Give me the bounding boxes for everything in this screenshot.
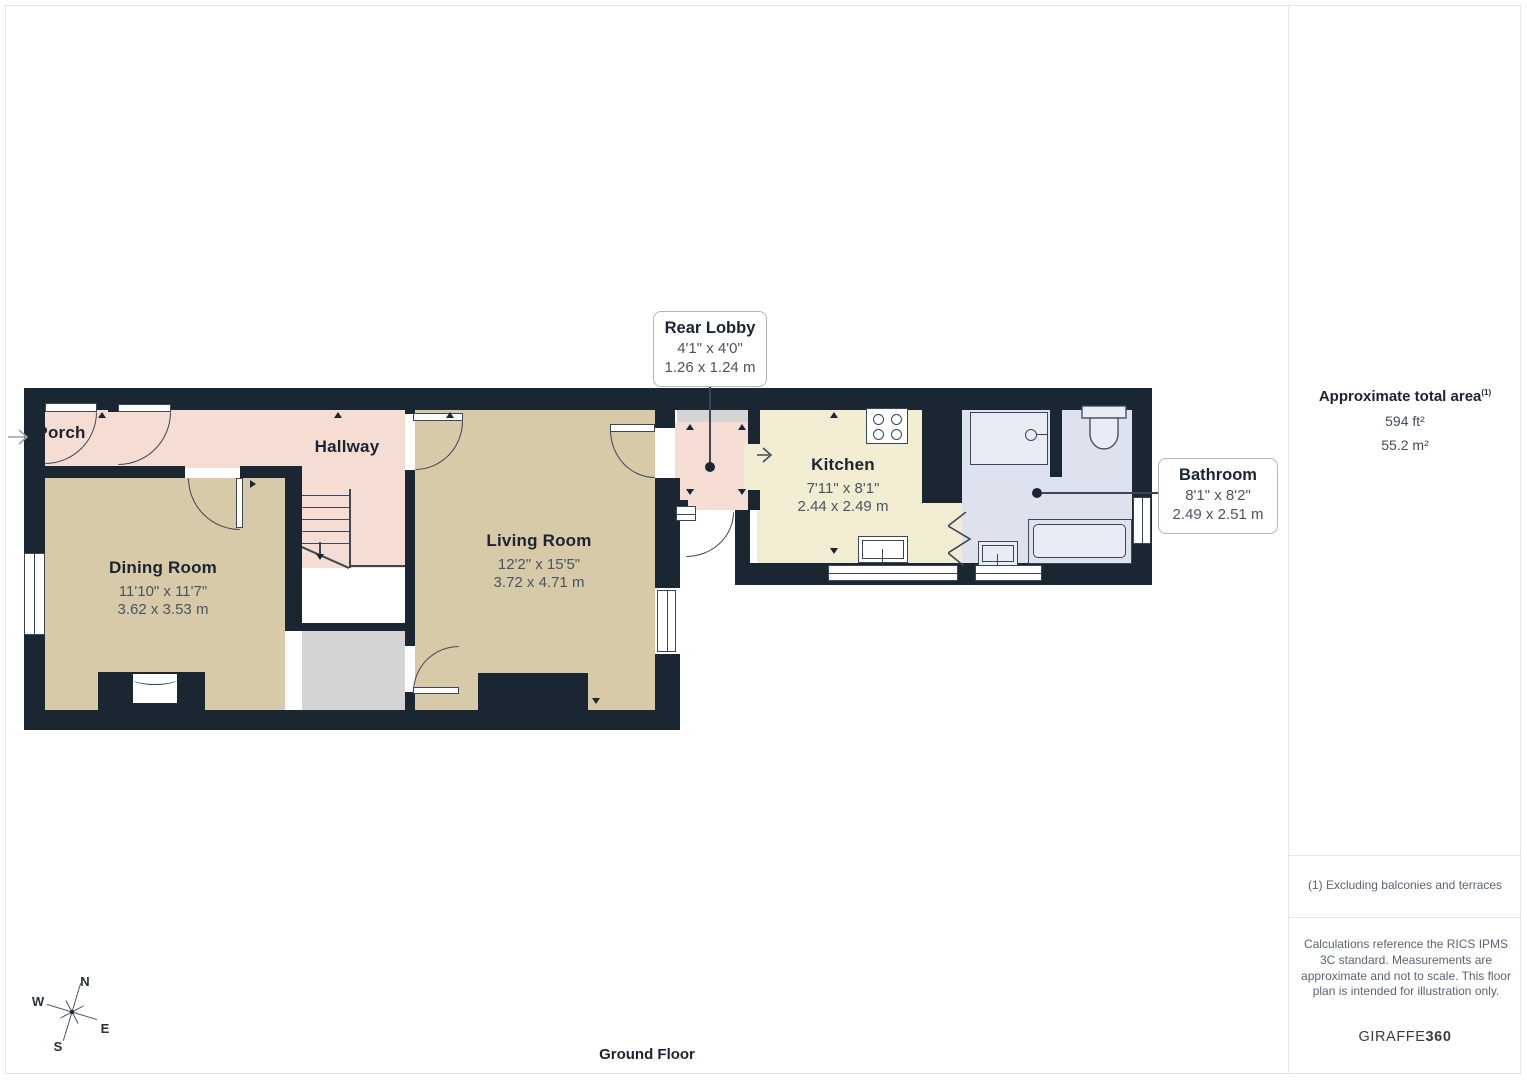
- stair-tread: [302, 531, 350, 532]
- door-leaf: [413, 413, 463, 421]
- kitchen-dims-metric: 2.44 x 2.49 m: [798, 499, 889, 517]
- door-tick-icon: [686, 424, 694, 430]
- stair-landing-line: [351, 565, 405, 567]
- storage-floor: [302, 631, 405, 710]
- room-label-dining: Dining Room 11'10" x 11'7" 3.62 x 3.53 m: [109, 558, 217, 620]
- footnote-text: (1) Excluding balconies and terraces: [1292, 878, 1518, 892]
- wall-segment: [748, 410, 760, 444]
- wall-segment: [1132, 388, 1152, 585]
- sidebar-divider: [1289, 855, 1521, 856]
- rear-lobby-label: Rear Lobby: [664, 319, 756, 338]
- room-label-kitchen: Kitchen 7'11" x 8'1" 2.44 x 2.49 m: [798, 455, 889, 517]
- room-label-living: Living Room 12'2" x 15'5" 3.72 x 4.71 m: [486, 531, 591, 593]
- door-tick-icon: [334, 412, 342, 418]
- stair-tread: [302, 495, 350, 496]
- total-area-ft: 594 ft²: [1290, 413, 1520, 429]
- stair-tread: [302, 543, 350, 544]
- dining-dims-imperial: 11'10" x 11'7": [109, 583, 217, 601]
- compass-south-label: S: [54, 1039, 63, 1054]
- callout-anchor-dot: [1032, 488, 1042, 498]
- window: [975, 565, 1042, 581]
- sidebar-divider: [1288, 6, 1289, 1074]
- window: [1133, 497, 1151, 544]
- bathroom-label: Bathroom: [1169, 466, 1267, 485]
- sink-tap-line: [997, 554, 998, 566]
- wall-segment: [1050, 410, 1062, 477]
- floor-break-zigzag-icon: [948, 512, 976, 568]
- door-tick-icon: [446, 412, 454, 418]
- brand-suffix: 360: [1426, 1029, 1452, 1045]
- stair-void: [302, 568, 405, 623]
- disclaimer-text: Calculations reference the RICS IPMS 3C …: [1300, 937, 1512, 1000]
- compass-north-label: N: [80, 974, 89, 989]
- hob-burner-icon: [873, 429, 884, 440]
- stair-rail: [349, 489, 351, 568]
- callout-rear-lobby: Rear Lobby 4'1" x 4'0" 1.26 x 1.24 m: [653, 311, 767, 387]
- chimney-breast: [478, 673, 588, 710]
- total-area-block: Approximate total area(1) 594 ft² 55.2 m…: [1290, 388, 1520, 453]
- wall-segment: [24, 388, 45, 553]
- hob-burner-icon: [891, 414, 902, 425]
- room-label-porch: Porch: [36, 423, 85, 443]
- shower-drain-line: [1037, 434, 1047, 435]
- door-tick-icon: [738, 489, 746, 495]
- wall-segment: [405, 692, 415, 710]
- stair-direction-arrow: [319, 542, 321, 554]
- door-leaf: [118, 404, 171, 412]
- toilet-icon: [1078, 404, 1132, 456]
- wall-segment: [405, 470, 415, 646]
- sidebar-divider: [1289, 917, 1521, 918]
- wall-segment: [24, 388, 1152, 410]
- wall-segment: [748, 490, 760, 510]
- rear-lobby-dims-metric: 1.26 x 1.24 m: [664, 359, 756, 378]
- porch-label: Porch: [36, 423, 85, 443]
- living-label: Living Room: [486, 531, 591, 551]
- living-dims-metric: 3.72 x 4.71 m: [486, 575, 591, 593]
- stair-tread: [302, 519, 350, 520]
- wall-segment: [24, 710, 680, 730]
- total-area-footnote-marker: (1): [1481, 388, 1491, 397]
- bathtub-basin: [1033, 524, 1126, 558]
- compass-icon: N W E S: [22, 972, 122, 1054]
- brand-logo: GIRAFFE360: [1290, 1029, 1520, 1045]
- bathroom-sink: [978, 541, 1018, 566]
- rear-door-threshold: [677, 408, 749, 422]
- total-area-m: 55.2 m²: [1290, 437, 1520, 453]
- brand-name: GIRAFFE: [1358, 1029, 1425, 1045]
- door-tick-icon: [830, 548, 838, 554]
- window: [24, 553, 45, 635]
- shower-tray: [970, 412, 1048, 465]
- wall-segment: [922, 408, 962, 503]
- hob-burner-icon: [891, 429, 902, 440]
- stair-arrow-head-icon: [316, 554, 324, 560]
- wall-segment: [655, 478, 680, 588]
- kitchen-label: Kitchen: [798, 455, 889, 475]
- rear-lobby-dims-imperial: 4'1" x 4'0": [664, 340, 756, 359]
- fireplace-arch-line: [133, 674, 177, 685]
- kitchen-sink: [858, 536, 908, 563]
- stair-tread: [302, 507, 350, 508]
- wall-segment: [285, 623, 415, 631]
- wall-segment: [655, 410, 675, 428]
- total-area-title-text: Approximate total area: [1319, 388, 1482, 405]
- floor-name-label: Ground Floor: [547, 1046, 747, 1063]
- room-label-hallway: Hallway: [315, 437, 380, 457]
- compass-west-label: W: [32, 994, 45, 1009]
- window: [657, 590, 676, 652]
- door-tick-icon: [738, 424, 746, 430]
- shower-drain-icon: [1025, 429, 1037, 441]
- bathroom-dims-imperial: 8'1" x 8'2": [1169, 487, 1267, 506]
- dining-dims-metric: 3.62 x 3.53 m: [109, 602, 217, 620]
- door-tick-icon: [686, 489, 694, 495]
- wall-segment: [655, 654, 680, 710]
- dining-label: Dining Room: [109, 558, 217, 578]
- kitchen-dims-imperial: 7'11" x 8'1": [798, 480, 889, 498]
- callout-bathroom: Bathroom 8'1" x 8'2" 2.49 x 2.51 m: [1158, 458, 1278, 534]
- sink-tap-line: [882, 549, 883, 562]
- callout-leader-line: [709, 378, 711, 464]
- door-tick-icon: [98, 412, 106, 418]
- wall-segment: [285, 477, 302, 631]
- door-leaf: [45, 403, 97, 412]
- door-tick-icon: [592, 698, 600, 704]
- living-dims-imperial: 12'2" x 15'5": [486, 556, 591, 574]
- floorplan-page: Porch Hallway Dining Room 11'10" x 11'7"…: [0, 0, 1527, 1080]
- door-tick-icon: [250, 480, 256, 488]
- callout-leader-line: [1042, 492, 1160, 494]
- wall-segment: [45, 466, 185, 478]
- entry-arrow-icon: [8, 429, 34, 445]
- hallway-label: Hallway: [315, 437, 380, 457]
- hob-burner-icon: [873, 414, 884, 425]
- door-tick-icon: [830, 412, 838, 418]
- bathtub: [1028, 519, 1132, 564]
- hob: [866, 408, 908, 444]
- total-area-title: Approximate total area(1): [1290, 388, 1520, 405]
- bathroom-dims-metric: 2.49 x 2.51 m: [1169, 506, 1267, 525]
- compass-east-label: E: [101, 1021, 110, 1036]
- window: [828, 565, 958, 581]
- kitchen-entry-arrow-icon: [757, 447, 777, 463]
- callout-anchor-dot: [705, 462, 715, 472]
